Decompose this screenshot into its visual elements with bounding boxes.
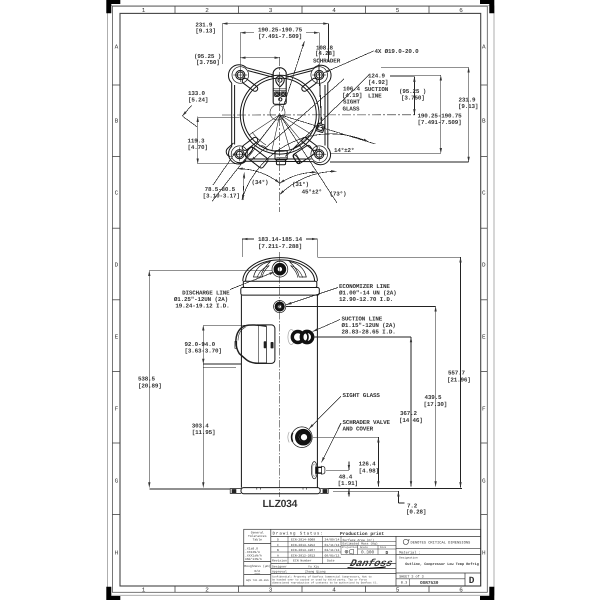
svg-text:[5.24]: [5.24] (188, 97, 208, 104)
svg-text:D: D (482, 262, 486, 269)
svg-text:OSR7530: OSR7530 (420, 581, 439, 586)
svg-text:Projection: Projection (342, 546, 358, 549)
svg-text:3: 3 (269, 586, 273, 593)
svg-text:[1.91]: [1.91] (338, 480, 358, 487)
svg-text:SCHRADER: SCHRADER (313, 57, 341, 64)
svg-text:SHEET 3 of 3: SHEET 3 of 3 (399, 575, 423, 580)
svg-text:[4.70]: [4.70] (188, 144, 208, 151)
svg-text:D: D (277, 538, 279, 542)
svg-text:[9.13]: [9.13] (458, 103, 478, 110)
svg-text:3: 3 (269, 7, 273, 14)
svg-text:557.7: 557.7 (448, 370, 466, 377)
svg-text:F: F (482, 406, 486, 413)
svg-text:Size: Size (380, 546, 387, 549)
svg-text:24/09/14: 24/09/14 (325, 538, 340, 542)
svg-text:Approval: Approval (272, 569, 287, 573)
svg-text:DENOTES CRITICAL DIMENSIONS: DENOTES CRITICAL DIMENSIONS (411, 540, 472, 545)
svg-text:A: A (115, 44, 119, 51)
svg-text:[11.95]: [11.95] (192, 429, 216, 436)
svg-text:Roughness (µm): Roughness (µm) (244, 564, 270, 568)
svg-text:D: D (469, 575, 475, 586)
svg-text:[9.13]: [9.13] (195, 28, 215, 35)
svg-text:Table: Table (253, 538, 262, 542)
svg-text:ECN Number: ECN Number (293, 559, 312, 563)
svg-text:[7.491-7.509]: [7.491-7.509] (418, 119, 462, 126)
svg-text:1: 1 (142, 586, 146, 593)
svg-text:SIGHT GLASS: SIGHT GLASS (343, 392, 381, 399)
svg-text:0.300: 0.300 (361, 551, 375, 556)
svg-text:E: E (115, 334, 119, 341)
svg-text:01/11/13: 01/11/13 (325, 543, 340, 547)
svg-text:B: B (277, 548, 279, 552)
svg-text:B: B (115, 118, 119, 125)
svg-text:AQS T31.30-396: AQS T31.30-396 (246, 579, 269, 582)
svg-text:28.83-28.65 I.D.: 28.83-28.65 I.D. (342, 328, 396, 335)
svg-text:Production print: Production print (340, 531, 384, 537)
svg-text:(73°): (73°) (330, 191, 347, 198)
svg-text:439.5: 439.5 (425, 394, 443, 401)
svg-text:2: 2 (205, 7, 209, 14)
svg-text:[3.750]: [3.750] (196, 59, 220, 66)
svg-text:0.3: 0.3 (401, 581, 407, 586)
svg-text:14°±2°: 14°±2° (334, 147, 354, 154)
svg-text:Date: Date (327, 559, 335, 563)
svg-text:G: G (482, 478, 486, 485)
svg-text:03/11/13: 03/11/13 (325, 548, 340, 552)
svg-text:5: 5 (396, 586, 400, 593)
svg-text:C: C (277, 543, 279, 547)
svg-text:Designation: Designation (399, 555, 418, 559)
svg-text:H: H (482, 550, 486, 557)
svg-text:Designer: Designer (272, 564, 287, 568)
svg-text:GLASS: GLASS (343, 105, 361, 112)
svg-text:A: A (482, 44, 486, 51)
svg-text:183.14-185.14: 183.14-185.14 (258, 236, 303, 243)
svg-text:Material :: Material : (399, 551, 421, 556)
svg-text:[17.30]: [17.30] (424, 401, 448, 408)
svg-text:N/A: N/A (255, 569, 261, 573)
svg-text:Estimated Mass (Kg): Estimated Mass (Kg) (343, 542, 378, 546)
svg-text:[3.750]: [3.750] (401, 94, 425, 101)
svg-text:LINE: LINE (368, 92, 382, 99)
svg-text:ECN-2012-3813: ECN-2012-3813 (291, 553, 315, 557)
svg-text:ECN-2014-6000: ECN-2014-6000 (291, 538, 315, 542)
svg-text:Revision: Revision (272, 559, 287, 563)
svg-text:ECN-2013-4267: ECN-2013-4267 (291, 548, 315, 552)
svg-text:[4.28]: [4.28] (315, 50, 335, 57)
svg-text:B: B (482, 118, 486, 125)
svg-text:H: H (115, 550, 119, 557)
svg-text:6: 6 (459, 7, 463, 14)
svg-text:F: F (115, 406, 119, 413)
svg-text:C: C (482, 190, 486, 197)
svg-text:[20.89]: [20.89] (138, 383, 162, 390)
svg-text:4: 4 (332, 586, 336, 593)
svg-text:[21.96]: [21.96] (447, 377, 471, 384)
svg-text:[0.28]: [0.28] (406, 509, 426, 516)
svg-text:12.90-12.70 I.D.: 12.90-12.70 I.D. (339, 296, 393, 303)
svg-text:45°±2°: 45°±2° (302, 189, 322, 196)
svg-text:D: D (115, 262, 119, 269)
svg-text:ANG°1±N/A: ANG°1±N/A (245, 557, 262, 561)
svg-text:[7.211-7.288]: [7.211-7.288] (258, 243, 302, 250)
svg-text:[14.46]: [14.46] (399, 417, 423, 424)
svg-text:A: A (277, 553, 279, 557)
svg-text:6: 6 (459, 586, 463, 593)
svg-text:Outline, Compressor Low Temp R: Outline, Compressor Low Temp Refrig (405, 562, 479, 567)
svg-text:08/05/12: 08/05/12 (325, 553, 340, 557)
svg-text:19.24-19.12 I.D.: 19.24-19.12 I.D. (175, 302, 229, 309)
svg-text:G: G (115, 478, 119, 485)
svg-text:Zhang Qiang: Zhang Qiang (305, 569, 326, 573)
svg-text:ECN-2013-5252: ECN-2013-5252 (291, 543, 315, 547)
svg-text:Scale: Scale (360, 546, 368, 549)
svg-text:4X Ø19.0-20.0: 4X Ø19.0-20.0 (375, 48, 420, 55)
svg-text:[3.10-3.17]: [3.10-3.17] (203, 192, 240, 199)
svg-text:LLZ034: LLZ034 (263, 499, 298, 510)
svg-text:5: 5 (396, 7, 400, 14)
svg-text:E: E (482, 334, 486, 341)
svg-text:4: 4 (332, 7, 336, 14)
svg-text:D: D (386, 550, 389, 556)
svg-text:2: 2 (205, 586, 209, 593)
svg-text:[4.98]: [4.98] (359, 467, 379, 474)
svg-text:(31°): (31°) (292, 181, 309, 188)
svg-text:367.2: 367.2 (400, 410, 418, 417)
svg-text:1: 1 (142, 7, 146, 14)
svg-text:C: C (115, 190, 119, 197)
svg-text:[7.491-7.509]: [7.491-7.509] (258, 33, 302, 40)
svg-text:dimensioned reproduction of co: dimensioned reproduction of contents to … (272, 582, 378, 585)
svg-text:Yu Xiy: Yu Xiy (308, 564, 319, 568)
svg-text:[3.63-3.70]: [3.63-3.70] (185, 348, 222, 355)
svg-text:(34°): (34°) (252, 179, 269, 186)
svg-text:AND COVER: AND COVER (343, 425, 374, 432)
